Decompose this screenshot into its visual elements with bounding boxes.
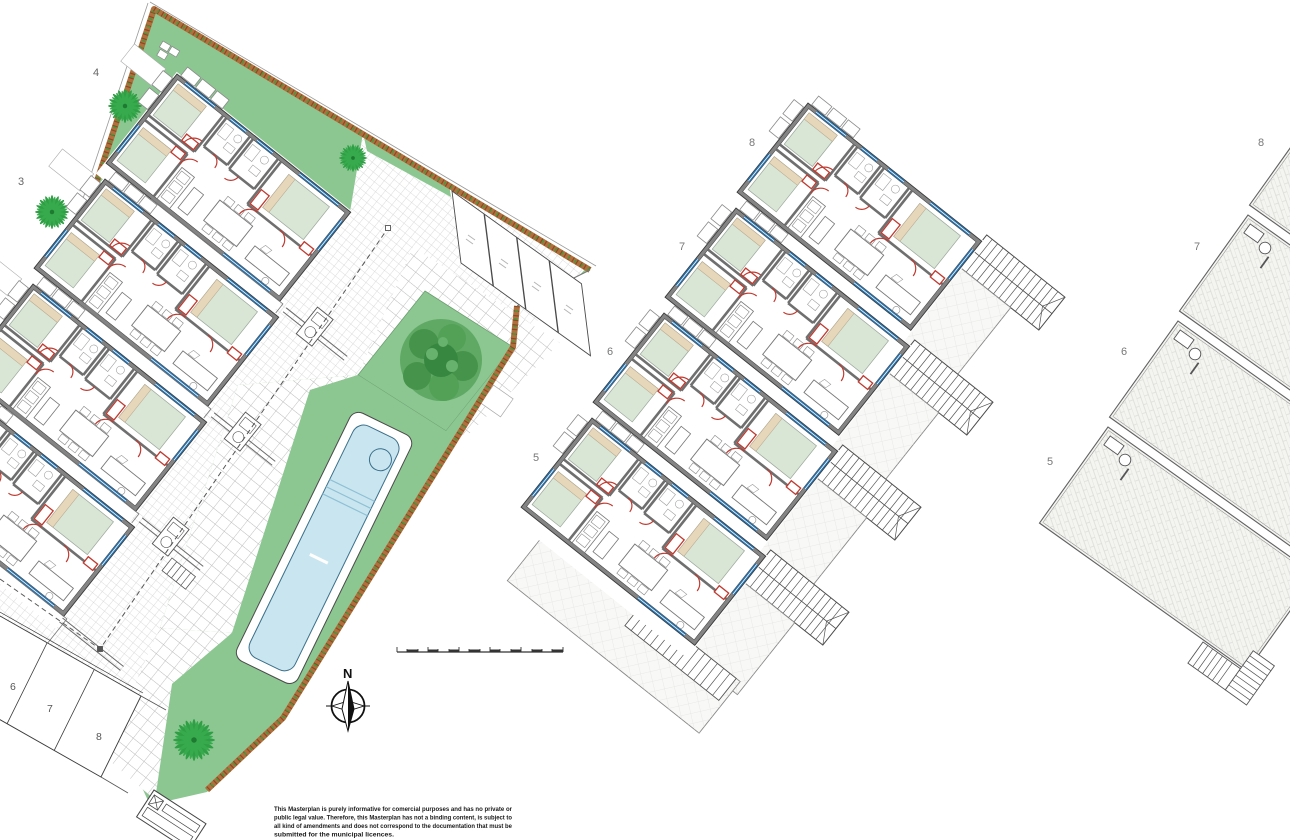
svg-text:This Masterplan is purely info: This Masterplan is purely informative fo… [274, 806, 513, 813]
svg-text:7: 7 [679, 241, 685, 253]
svg-text:6: 6 [607, 346, 613, 358]
svg-text:public legal value. Therefore,: public legal value. Therefore, this Mast… [274, 815, 512, 822]
svg-text:7: 7 [47, 703, 53, 715]
svg-text:5: 5 [1047, 456, 1053, 468]
svg-text:N: N [343, 666, 352, 681]
svg-text:submitted for the municipal li: submitted for the municipal licences. [274, 832, 394, 839]
svg-text:5: 5 [533, 452, 539, 464]
svg-text:3: 3 [18, 176, 24, 188]
svg-text:6: 6 [10, 681, 16, 693]
svg-text:4: 4 [93, 67, 99, 79]
svg-text:8: 8 [749, 137, 755, 149]
svg-text:7: 7 [1194, 241, 1200, 253]
svg-text:6: 6 [1121, 346, 1127, 358]
svg-text:8: 8 [96, 731, 102, 743]
svg-text:all kind of amendments and doe: all kind of amendments and does not corr… [274, 823, 513, 830]
svg-text:8: 8 [1258, 137, 1264, 149]
